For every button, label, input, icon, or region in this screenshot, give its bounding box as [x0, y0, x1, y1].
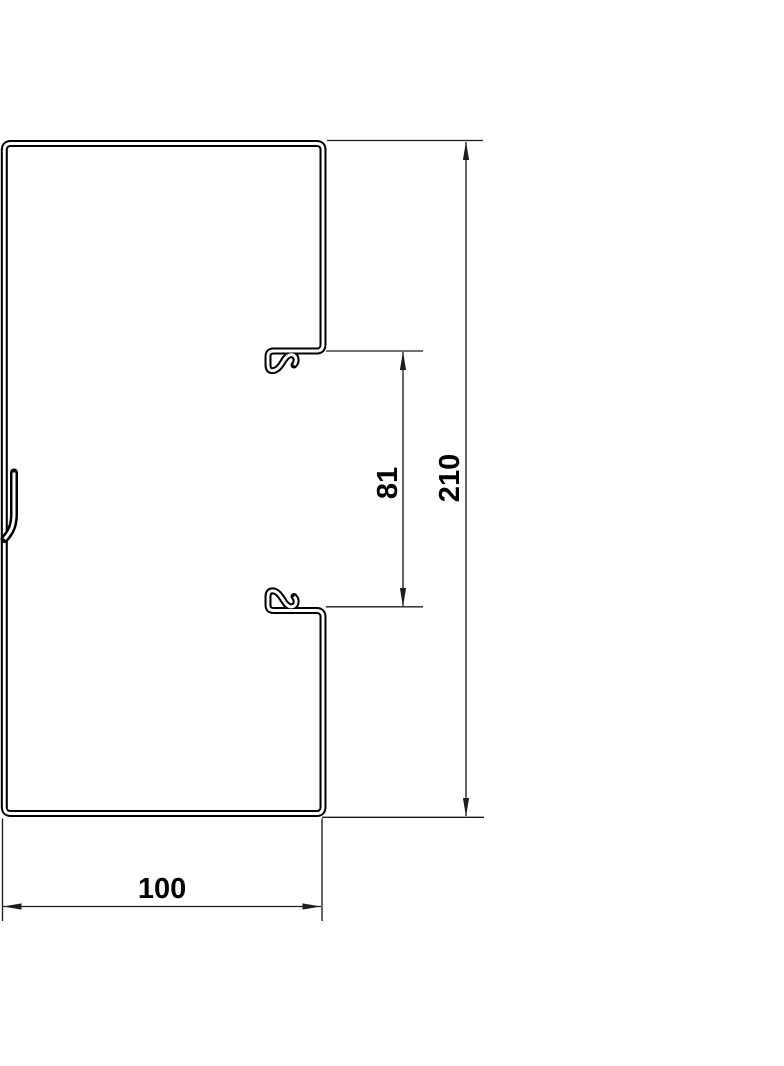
dimension-lines — [3, 141, 485, 922]
profile-outline — [4, 144, 323, 814]
arrow-up-icon — [400, 352, 406, 371]
profile-inner-core — [4, 144, 323, 814]
dimension-arrowheads — [3, 142, 469, 910]
arrow-up-icon — [463, 142, 469, 161]
label-opening-height: 81 — [372, 467, 404, 499]
drawing-page: 100 81 210 — [0, 0, 784, 1066]
arrow-left-icon — [3, 903, 22, 909]
arrow-down-icon — [400, 588, 406, 607]
profile-outer-contour — [4, 144, 323, 814]
arrow-right-icon — [303, 903, 322, 909]
label-outer-height: 210 — [434, 454, 466, 502]
technical-drawing-canvas: 100 81 210 — [0, 0, 784, 1066]
dimension-labels: 100 81 210 — [138, 454, 466, 905]
label-outer-width: 100 — [138, 873, 186, 905]
arrow-down-icon — [463, 798, 469, 817]
